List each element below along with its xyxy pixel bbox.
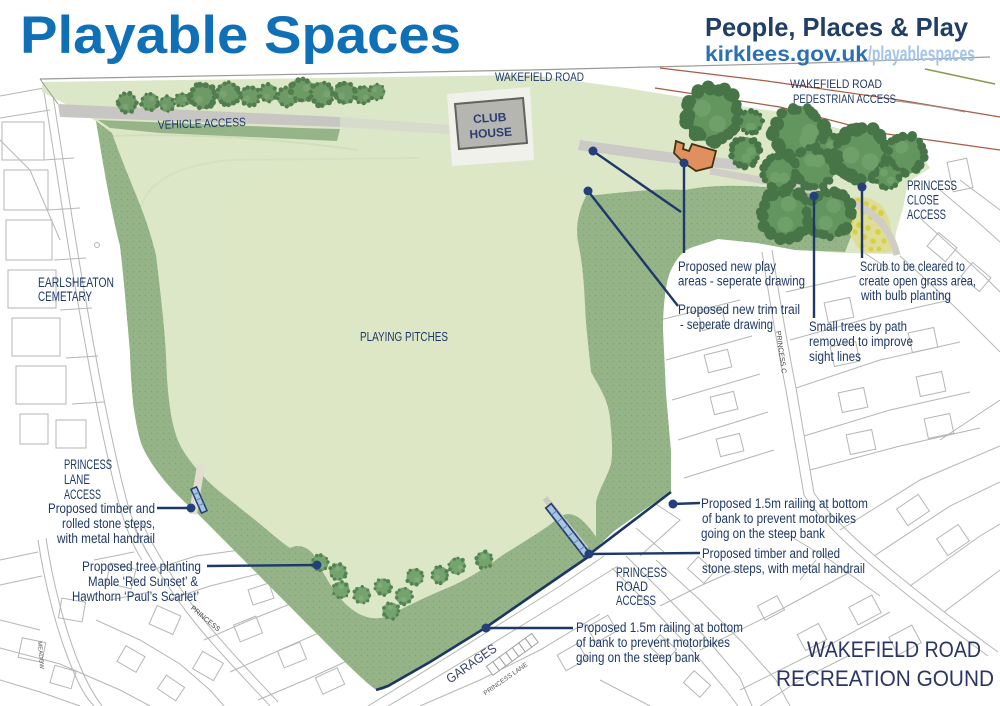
svg-text:Proposed 1.5m railing at botto: Proposed 1.5m railing at bottom <box>701 496 868 511</box>
svg-text:PRINCESS: PRINCESS <box>616 565 667 580</box>
svg-text:People, Places & Play: People, Places & Play <box>705 12 969 42</box>
svg-text:kirklees.gov.uk/playablespaces: kirklees.gov.uk/playablespaces <box>705 43 975 66</box>
svg-text:CLOSE: CLOSE <box>907 193 939 208</box>
svg-text:removed to improve: removed to improve <box>809 334 913 349</box>
svg-text:RECREATION GOUND: RECREATION GOUND <box>776 666 994 691</box>
svg-text:CEMETARY: CEMETARY <box>38 289 92 304</box>
svg-text:PEDESTRIAN ACCESS: PEDESTRIAN ACCESS <box>793 92 896 106</box>
svg-text:with bulb planting: with bulb planting <box>860 288 951 303</box>
svg-text:sight lines: sight lines <box>809 349 861 364</box>
svg-text:of bank to prevent motorbikes: of bank to prevent motorbikes <box>702 511 856 526</box>
svg-text:CLUB: CLUB <box>473 110 508 126</box>
svg-text:Proposed timber and: Proposed timber and <box>48 501 155 516</box>
svg-text:stone steps, with metal handra: stone steps, with metal handrail <box>702 561 865 576</box>
svg-text:ACCESS: ACCESS <box>907 207 946 222</box>
svg-text:ACCESS: ACCESS <box>64 487 101 502</box>
svg-text:Small trees by path: Small trees by path <box>809 319 907 334</box>
svg-text:Proposed new trim trail: Proposed new trim trail <box>678 302 800 317</box>
svg-text:Proposed new play: Proposed new play <box>678 259 776 274</box>
svg-text:WAKEFIELD ROAD: WAKEFIELD ROAD <box>807 637 981 662</box>
svg-text:Playable Spaces: Playable Spaces <box>20 6 461 65</box>
svg-text:ROAD: ROAD <box>616 579 648 594</box>
svg-text:areas - seperate drawing: areas - seperate drawing <box>678 274 805 289</box>
svg-text:rolled stone steps,: rolled stone steps, <box>62 516 155 531</box>
svg-text:WAKEFIELD ROAD: WAKEFIELD ROAD <box>790 77 882 91</box>
svg-text:- seperate drawing: - seperate drawing <box>680 317 773 332</box>
svg-text:create open grass area,: create open grass area, <box>859 274 976 289</box>
svg-text:HOUSE: HOUSE <box>469 125 513 142</box>
svg-text:with metal handrail: with metal handrail <box>56 531 155 546</box>
svg-text:going on the steep bank: going on the steep bank <box>576 650 700 665</box>
svg-text:PRINCESS: PRINCESS <box>64 457 112 472</box>
svg-text:going on the steep bank: going on the steep bank <box>701 526 825 541</box>
svg-text:Proposed 1.5m railing at botto: Proposed 1.5m railing at bottom <box>576 620 743 635</box>
svg-text:PRINCESS: PRINCESS <box>907 178 957 193</box>
svg-text:PLAYING PITCHES: PLAYING PITCHES <box>360 330 448 344</box>
svg-text:Hawthorn ‘Paul’s Scarlet’: Hawthorn ‘Paul’s Scarlet’ <box>72 589 199 604</box>
svg-text:WAKEFIELD ROAD: WAKEFIELD ROAD <box>495 70 584 84</box>
svg-text:Proposed tree planting: Proposed tree planting <box>82 559 201 574</box>
svg-text:LANE: LANE <box>64 472 90 487</box>
svg-text:ACCESS: ACCESS <box>616 593 656 608</box>
svg-text:Maple ‘Red Sunset’ &: Maple ‘Red Sunset’ & <box>88 574 198 589</box>
svg-text:of bank to prevent motorbikes: of bank to prevent motorbikes <box>576 635 730 650</box>
svg-text:EARLSHEATON: EARLSHEATON <box>38 275 114 290</box>
svg-text:Scrub to be cleared to: Scrub to be cleared to <box>860 259 965 274</box>
svg-text:Proposed timber and rolled: Proposed timber and rolled <box>702 546 840 561</box>
